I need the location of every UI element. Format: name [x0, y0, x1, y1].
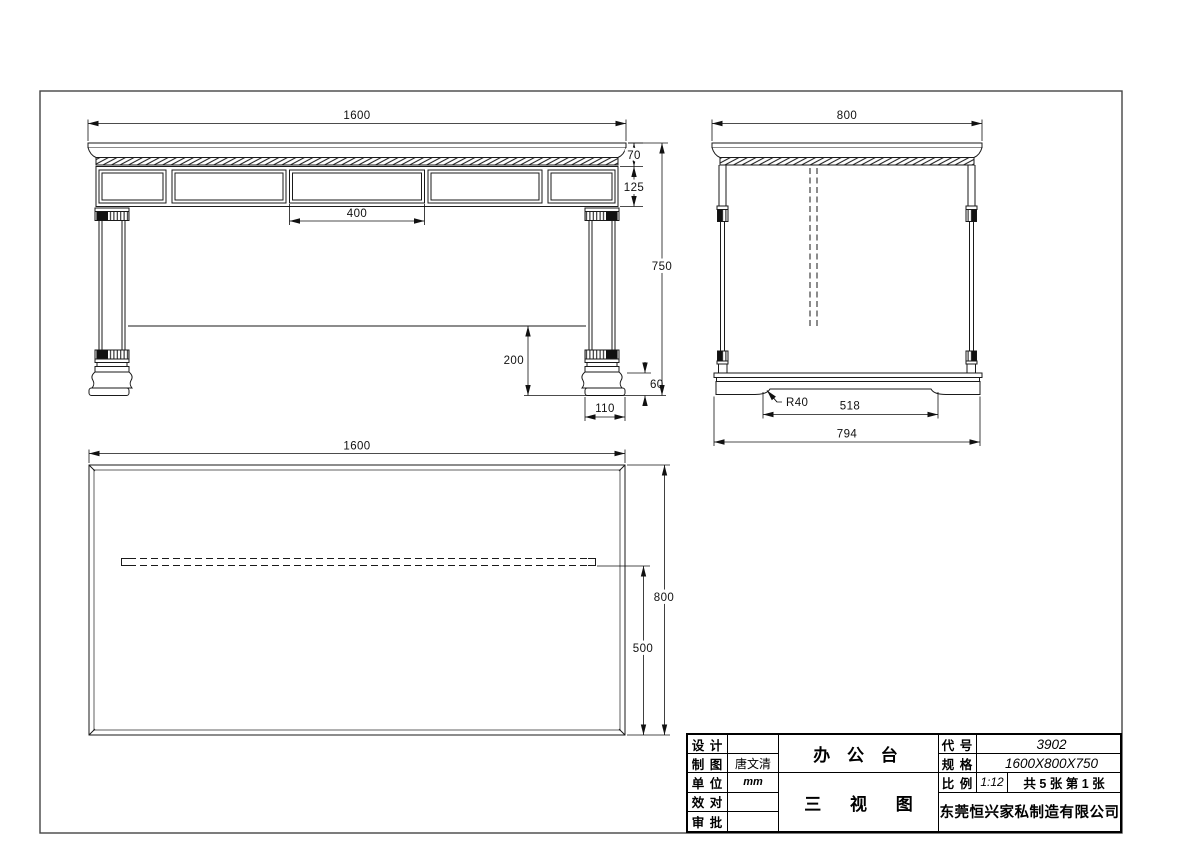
company-name: 东莞恒兴家私制造有限公司	[939, 793, 1120, 831]
front-view: 1600 70 125 750 400 200 60 110	[88, 110, 672, 421]
field-unit-label: 单 位	[688, 773, 728, 792]
field-approve-value	[728, 812, 779, 831]
field-design-label: 设 计	[688, 735, 728, 754]
plan-dimensions	[89, 450, 670, 736]
spec-label: 规 格	[939, 754, 977, 773]
side-leg	[717, 165, 728, 373]
field-draftsman-value: 唐文清	[728, 754, 779, 773]
dim-panel-clearance: 200	[504, 355, 524, 367]
rope-molding-side	[720, 158, 974, 166]
drawing-sheet: 1600 70 125 750 400 200 60 110	[0, 0, 1191, 842]
scale-value: 1:12	[977, 773, 1008, 792]
dim-apron-height: 125	[624, 182, 644, 194]
dim-corner-radius: R40	[786, 397, 808, 409]
dim-foot-width: 110	[595, 403, 615, 415]
field-unit-value: mm	[728, 773, 779, 792]
rope-molding	[96, 158, 618, 166]
side-dimensions	[712, 120, 982, 447]
title-block: 设 计 办 公 台 代 号 3902 制 图 唐文清 规 格 1600X800X…	[686, 733, 1122, 833]
dim-plan-depth: 800	[654, 592, 674, 604]
drawing-canvas: 1600 70 125 750 400 200 60 110	[0, 0, 1191, 842]
plan-view: 1600 800 500	[89, 441, 674, 736]
dim-center-panel: 400	[347, 208, 367, 220]
dim-base-width: 794	[837, 429, 858, 441]
dim-top-thickness: 70	[627, 150, 641, 162]
spec-value: 1600X800X750	[977, 754, 1120, 773]
field-design-value	[728, 735, 779, 754]
hidden-panel-strip	[122, 559, 596, 566]
dim-depth: 800	[837, 110, 857, 122]
field-check-label: 效 对	[688, 793, 728, 812]
dim-plan-width: 1600	[343, 441, 370, 453]
field-check-value	[728, 793, 779, 812]
front-leg	[89, 208, 132, 396]
dim-overall-height: 750	[652, 261, 672, 273]
side-view: 800 R40 518 794	[712, 110, 982, 446]
scale-label: 比 例	[939, 773, 977, 792]
dim-foot-height: 60	[650, 379, 664, 391]
field-draftsman-label: 制 图	[688, 754, 728, 773]
product-name: 办 公 台	[779, 735, 939, 773]
base-notch	[716, 382, 980, 395]
dim-base-notch: 518	[840, 401, 860, 413]
code-value: 3902	[977, 735, 1120, 754]
dim-panel-offset: 500	[633, 643, 653, 655]
field-approve-label: 审 批	[688, 812, 728, 831]
code-label: 代 号	[939, 735, 977, 754]
sheet-info: 共 5 张 第 1 张	[1008, 773, 1120, 792]
dim-front-width: 1600	[343, 110, 370, 122]
drawing-title: 三 视 图	[779, 773, 939, 831]
